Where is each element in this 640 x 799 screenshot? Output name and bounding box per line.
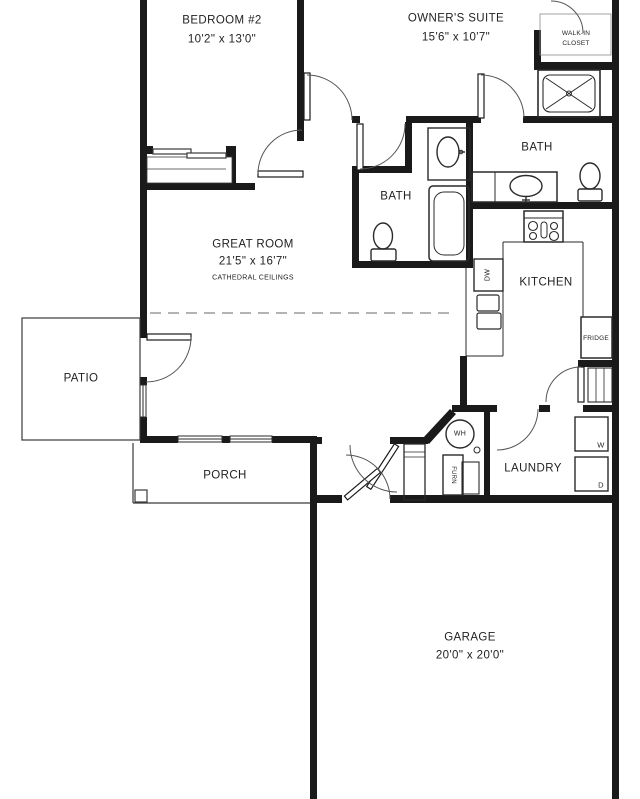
room-label-owners-suite: OWNER'S SUITE — [408, 13, 504, 25]
entry-door-leaf-2 — [344, 468, 380, 499]
appliance-label-dishwasher: DW — [485, 269, 492, 281]
bathtub-inner — [434, 192, 464, 255]
vanity-counter — [472, 172, 557, 202]
toilet-bowl — [580, 163, 600, 189]
entry-door-leaf — [367, 444, 399, 489]
appliance-label-furnace: FURN — [450, 466, 456, 483]
floor-drain — [474, 447, 480, 453]
kitchen-nook-door-arc — [546, 367, 581, 402]
room-label-kitchen: KITCHEN — [519, 277, 572, 289]
walkin-closet-door-arc — [551, 1, 583, 33]
appliance-label-washer: W — [597, 441, 604, 449]
sink-basin — [477, 295, 499, 311]
room-label-porch: PORCH — [203, 470, 247, 482]
bedroom2-door-arc — [258, 130, 302, 174]
vanity-counter — [428, 128, 470, 180]
windows — [140, 385, 272, 442]
room-label-walkin-line2: CLOSET — [562, 41, 589, 48]
room-label-great-room: GREAT ROOM — [212, 239, 294, 251]
patio-porch — [22, 318, 310, 503]
sink — [437, 137, 459, 167]
owners-bath-door-leaf — [478, 74, 484, 118]
laundry-door-arc — [497, 409, 538, 450]
floor-plan: BEDROOM #2 10'2" x 13'0" OWNER'S SUITE 1… — [0, 0, 640, 799]
burner — [550, 232, 559, 241]
room-label-bedroom2: BEDROOM #2 — [182, 15, 261, 27]
room-note-great-room: CATHEDRAL CEILINGS — [212, 275, 294, 282]
owners-bath-fixtures — [472, 163, 602, 203]
room-dims-garage: 20'0" x 20'0" — [436, 650, 504, 662]
stove-center — [541, 222, 547, 238]
porch-post — [135, 490, 147, 502]
hall-bath-door-arc — [360, 124, 405, 169]
bedroom2-closet — [147, 149, 232, 183]
room-label-garage: GARAGE — [444, 632, 496, 644]
room-label-owners-bath: BATH — [521, 142, 552, 154]
patio-door-leaf — [147, 334, 191, 340]
closet-slider-door — [187, 153, 226, 158]
room-label-laundry: LAUNDRY — [504, 463, 562, 475]
room-label-patio: PATIO — [64, 373, 99, 385]
floor-plan-drawing — [0, 0, 640, 799]
appliance-label-fridge: FRIDGE — [583, 336, 609, 343]
owners-suite-door-leaf — [304, 73, 310, 120]
toilet-tank — [578, 189, 602, 201]
sink-basin — [477, 313, 501, 329]
burner — [529, 222, 538, 231]
toilet-bowl — [374, 223, 393, 249]
patio-door-arc — [146, 337, 191, 382]
hall-bath-door-leaf — [357, 124, 363, 170]
furnace-side — [462, 462, 479, 494]
sink — [510, 176, 542, 197]
burner — [530, 233, 537, 240]
kitchen-nook-door-leaf — [578, 367, 584, 402]
owners-bath-door-arc — [481, 75, 524, 118]
burner — [551, 223, 558, 230]
bedroom2-door-leaf — [258, 171, 303, 177]
room-dims-great-room: 21'5" x 16'7" — [219, 256, 287, 268]
kitchen-fixtures — [466, 211, 612, 402]
walls — [140, 0, 619, 799]
room-dims-owners-suite: 15'6" x 10'7" — [422, 32, 490, 44]
room-dims-bedroom2: 10'2" x 13'0" — [188, 34, 256, 46]
shower — [538, 70, 600, 117]
closet-slider-door — [153, 149, 191, 154]
room-label-hall-bath: BATH — [380, 191, 411, 203]
appliance-label-dryer: D — [598, 481, 604, 489]
pantry-closet — [588, 368, 612, 402]
toilet-tank — [371, 249, 396, 261]
room-label-walkin-line1: WALK-IN — [562, 31, 590, 38]
owners-suite-door-arc — [307, 75, 352, 120]
appliance-label-water-heater: WH — [454, 431, 466, 438]
